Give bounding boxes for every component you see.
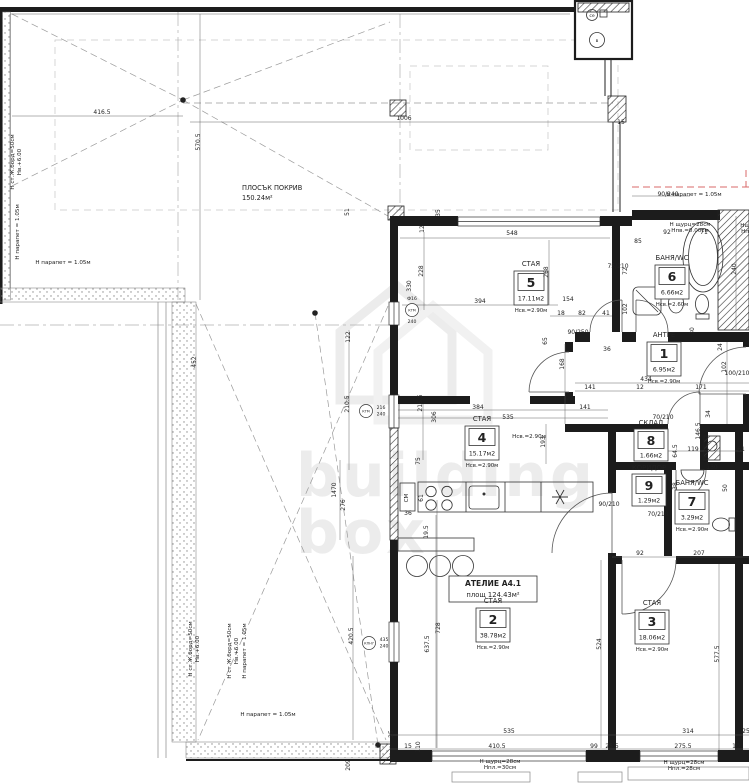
room-height: Нсв.=2.90м (466, 463, 499, 469)
dimension-label: 416.5 (93, 109, 110, 116)
dimension-label: 15 (617, 119, 625, 126)
dimension-label: 1006 (396, 115, 411, 122)
room-area: 1.66м2 (640, 453, 662, 460)
dimension-label: 75/210 (607, 263, 628, 270)
gravel-band-bottom (186, 742, 392, 758)
room-number: 8 (647, 433, 656, 448)
marker-height: 240 (377, 412, 386, 418)
annotation-label: Н парапет = 1.05м (240, 712, 295, 718)
room-area: 3.29м2 (681, 515, 703, 522)
room-number: 3 (648, 614, 657, 629)
annotation-label: Нв.+6.00 (195, 635, 201, 662)
dimension-label: 207 (693, 550, 705, 557)
annotation-label: Нп (741, 229, 749, 235)
dimension-label: 82 (578, 310, 586, 317)
room-label-8: СКЛАД 8 1.66м2 (634, 419, 668, 461)
room-height: Нсв.=2.90м (676, 527, 709, 533)
room-type: БАНЯ/WC (656, 254, 689, 262)
room-number: 9 (645, 478, 654, 493)
dimension-label: 64.5 (672, 444, 679, 458)
marker-width: 435 (380, 637, 389, 643)
watermark-text-2: box (296, 498, 428, 568)
dimension-label: 12 (636, 384, 644, 391)
dimension-label: 70/210 (647, 511, 668, 518)
dimension-label: 141 (579, 404, 591, 411)
marker-height: 240 (408, 319, 417, 325)
annotation-label: Нв.+6.00 (17, 148, 23, 175)
room-type: БАНЯ/WC (676, 479, 709, 487)
dimension-label: 12 (419, 225, 426, 233)
dimension-label: 535 (503, 728, 515, 735)
dimension-label: 70/210 (652, 414, 673, 421)
dimension-label: 228 (418, 265, 425, 277)
room-number: 7 (688, 494, 697, 509)
annotation-label: Н ст.Ж.борд=50см (10, 134, 16, 189)
dimension-label: 122 (345, 331, 352, 343)
annotation-label: Н парапет = 1.05м (15, 204, 21, 259)
dimension-label: 110 (415, 741, 422, 753)
room-area: 15.17м2 (469, 451, 495, 458)
roof-drain (180, 97, 186, 103)
room-number: 2 (489, 612, 498, 627)
marker-code: КТМ (408, 309, 415, 313)
room-number: 5 (527, 275, 536, 290)
dimension-label: 171 (695, 384, 707, 391)
dimension-label: 61 (418, 494, 425, 502)
dimension-label: 168 (559, 358, 566, 370)
dimension-label: 25 (742, 728, 749, 735)
room-height: Нсв.=2.90м (515, 308, 548, 314)
room-area: 18.06м2 (639, 635, 665, 642)
room-area: 6.95м2 (653, 367, 675, 374)
dimension-label: 50 (722, 484, 729, 492)
dimension-label: 1470 (331, 482, 338, 497)
dimension-label: 51 (344, 208, 351, 216)
dimension-label: 65 (542, 337, 549, 345)
dimension-label: 92 (636, 550, 644, 557)
dimension-label: 330 (406, 280, 413, 292)
room-type: СТАЯ (643, 599, 662, 607)
dimension-label: 314 (682, 728, 694, 735)
dimension-label: 210.5 (344, 395, 351, 412)
dimension-label: 38 (672, 482, 679, 490)
dimension-label: 92 (663, 229, 671, 236)
dimension-label: 36 (603, 346, 611, 353)
dimension-label: 410.5 (488, 743, 505, 750)
room-area: 1.29м2 (638, 498, 660, 505)
annotation-label: Н ст.Ж.борд=50см (227, 623, 233, 678)
annotation-label: Н парапет = 1.05м (666, 192, 721, 198)
room-number: 6 (668, 269, 677, 284)
roof-area: 150.24м² (242, 194, 273, 202)
shaft-cap-label-1: се (589, 14, 595, 19)
annotation-label: Нпв.=0.00см (671, 228, 708, 234)
dimension-label: 577.5 (714, 645, 721, 662)
dimension-label: 24 (717, 343, 724, 351)
dimension-label: 18 (557, 310, 565, 317)
dimension-label: 637.5 (424, 635, 431, 652)
room-height: Нсв.=2.90м (636, 647, 669, 653)
dimension-label: 19.5 (423, 525, 430, 539)
dimension-label: 75 (415, 457, 422, 465)
dimension-label: 10 (732, 743, 740, 750)
room-height: Нсв.=2.90м (648, 379, 681, 385)
dimension-label: 209 (345, 759, 352, 771)
dimension-label: 306 (431, 411, 438, 423)
unit-title: АТЕЛИЕ А4.1 (465, 579, 521, 588)
dimension-label: 535 (502, 414, 514, 421)
annotation-label: Н ст.Ж.борд=50см (188, 621, 194, 676)
room-type: КОРИДОР (632, 464, 666, 472)
dimension-label: 154 (562, 296, 574, 303)
dimension-label: 99 (590, 743, 598, 750)
room-area: 6.66м2 (661, 290, 683, 297)
room-number: 4 (478, 430, 487, 445)
room-type: АНТРЕ (653, 331, 675, 339)
room-type: СТАЯ (473, 415, 492, 423)
dimension-label: 90/250 (567, 329, 588, 336)
annotation-label: Нв.+6.00 (234, 637, 240, 664)
room-area: 17.11м2 (518, 296, 544, 303)
dimension-label: 35 (435, 209, 442, 217)
annotation-label: Нпл.=28см (668, 766, 700, 772)
dimension-label: 420.5 (348, 627, 355, 644)
marker-code: КТМ (362, 410, 369, 414)
gravel-band-mid (0, 288, 185, 302)
room-height: Нсв.=2.60м (656, 302, 689, 308)
dimension-label: 85 (634, 238, 642, 245)
room-type: СТАЯ (484, 597, 503, 605)
room-area: 38.78м2 (480, 633, 506, 640)
dimension-label: 130 (706, 464, 718, 471)
dimension-label: 570.5 (195, 133, 202, 150)
annotation-label: Н парапет = 1.05м (35, 260, 90, 266)
dimension-label: 119 (687, 446, 699, 453)
dimension-label: 275.5 (674, 743, 691, 750)
annotation-label: СМ (404, 493, 410, 502)
dimension-label: 102 (721, 361, 728, 373)
dimension-label: 524 (596, 638, 603, 650)
dimension-label: 90/210 (598, 501, 619, 508)
roof-name: ПЛОСЪК ПОКРИВ (242, 184, 303, 192)
room-number: 1 (660, 346, 669, 361)
dimension-label: 216.5 (417, 394, 424, 411)
dimension-label: 728 (435, 622, 442, 634)
dimension-label: 41 (602, 310, 610, 317)
room-height: Нсв.=2.90м (477, 645, 510, 651)
dimension-label: 15 (404, 743, 412, 750)
dimension-label: 548 (506, 230, 518, 237)
dimension-label: 63.5 (703, 444, 710, 458)
dimension-label: 61 (737, 446, 745, 453)
roof-drain (312, 310, 318, 316)
dimension-label: 268 (543, 266, 550, 278)
dimension-label: 276 (340, 499, 347, 511)
marker-height: 240 (380, 644, 389, 650)
floor-plan-drawing: building box се в (0, 0, 749, 783)
dimension-label: 30 (689, 327, 696, 335)
dimension-label: 36 (404, 510, 412, 517)
dimension-label: 25.5 (605, 743, 619, 750)
dimension-label: 146.5 (695, 422, 702, 439)
dimension-label: 240 (731, 263, 738, 275)
dimension-label: 394 (474, 298, 486, 305)
floor-plan-canvas: building box се в (0, 0, 749, 783)
room-type: СТАЯ (522, 260, 541, 268)
dimension-label: 452 (191, 356, 198, 368)
dimension-label: 141 (584, 384, 596, 391)
marker-code: КПН7 (364, 642, 374, 646)
dimension-label: 384 (472, 404, 484, 411)
annotation-label: Н парапет = 1.05м (242, 623, 248, 678)
room-label-9: КОРИДОР 9 1.29м2 (632, 464, 666, 506)
annotation-label: Нпл.=30см (484, 765, 516, 771)
shaft-cap-label-2: в (596, 39, 599, 44)
dimension-label: 102 (622, 303, 629, 315)
dimension-label: 434 (640, 376, 652, 383)
dimension-label: 25 (388, 730, 395, 738)
dimension-label: 34 (705, 410, 712, 418)
marker-width: Ф16 (407, 296, 417, 302)
dimension-label: 100/210 (725, 370, 749, 377)
marker-width: 216 (377, 405, 386, 411)
annotation-label: Нсв.=2.90м (512, 434, 546, 440)
